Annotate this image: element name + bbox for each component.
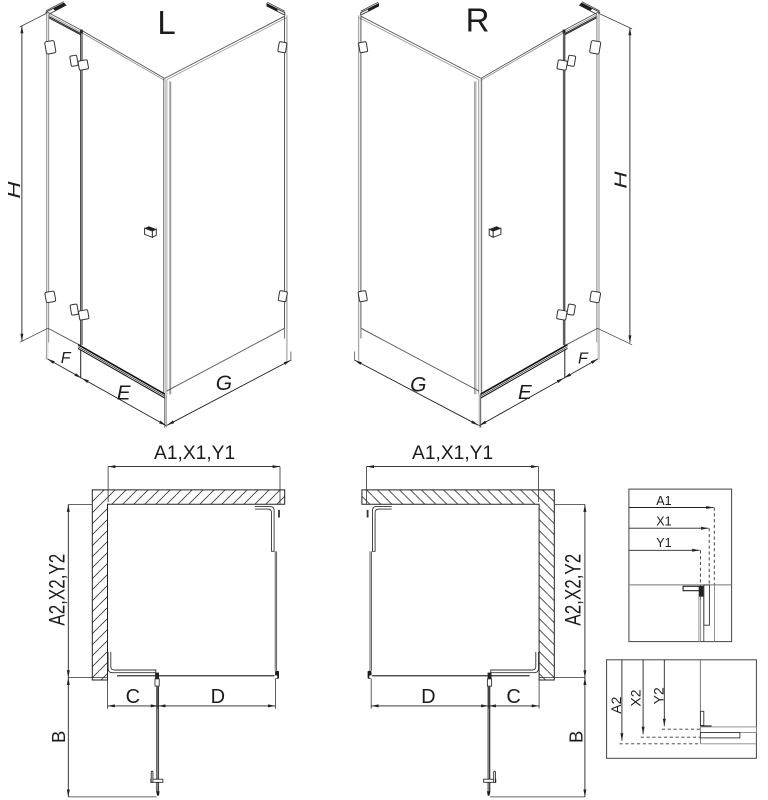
svg-text:A1: A1 [656, 494, 671, 508]
svg-text:Y2: Y2 [651, 687, 667, 704]
svg-text:A2: A2 [608, 696, 624, 713]
svg-text:C: C [506, 686, 520, 708]
svg-text:E: E [117, 381, 131, 404]
svg-text:A1,X1,Y1: A1,X1,Y1 [412, 443, 493, 464]
svg-text:B: B [565, 731, 586, 743]
svg-text:L: L [157, 4, 175, 41]
svg-text:F: F [61, 350, 72, 367]
svg-text:X2: X2 [628, 689, 644, 706]
svg-text:A1,X1,Y1: A1,X1,Y1 [154, 443, 235, 464]
svg-text:G: G [410, 374, 426, 397]
svg-text:E: E [518, 381, 532, 404]
svg-text:A2,X2,Y2: A2,X2,Y2 [561, 554, 586, 626]
svg-text:Y1: Y1 [656, 536, 671, 550]
svg-text:G: G [216, 372, 232, 395]
svg-text:D: D [421, 686, 435, 708]
svg-text:X1: X1 [656, 515, 671, 529]
svg-text:B: B [48, 731, 69, 743]
svg-text:A2,X2,Y2: A2,X2,Y2 [45, 554, 70, 626]
svg-text:H: H [4, 181, 24, 199]
svg-text:H: H [611, 171, 631, 189]
svg-text:D: D [211, 686, 225, 708]
svg-text:C: C [126, 686, 140, 708]
svg-text:R: R [466, 2, 490, 39]
svg-text:F: F [578, 350, 589, 367]
